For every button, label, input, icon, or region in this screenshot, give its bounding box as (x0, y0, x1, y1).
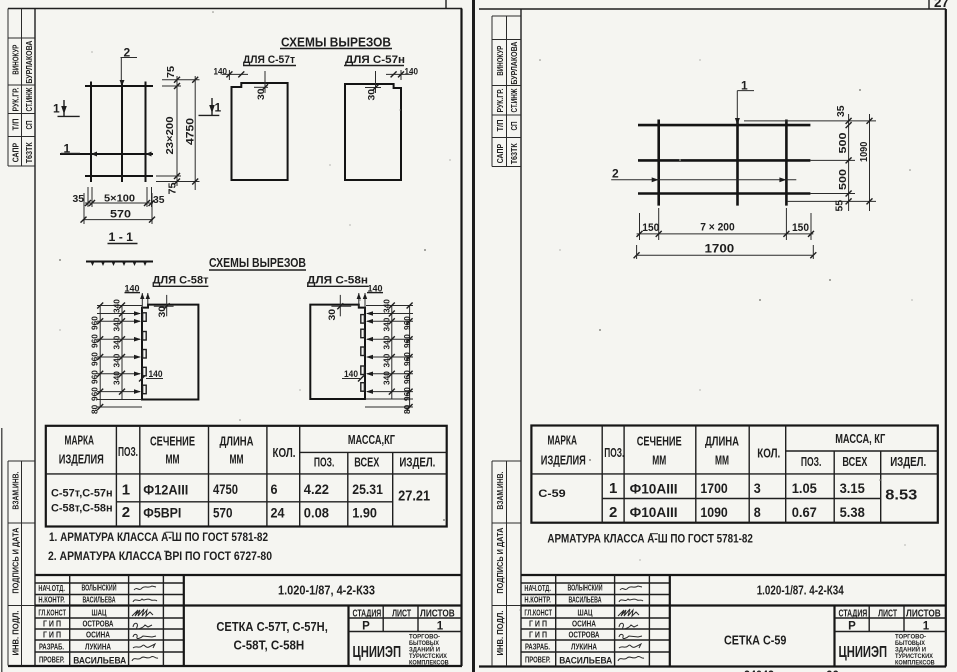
svg-text:140: 140 (149, 369, 163, 379)
svg-text:Ф12АIII: Ф12АIII (143, 483, 188, 498)
svg-text:ВЗАМ.ИНВ.: ВЗАМ.ИНВ. (496, 472, 505, 510)
svg-text:Ф5ВРI: Ф5ВРI (143, 506, 181, 521)
svg-text:ПОЗ.: ПОЗ. (604, 446, 624, 460)
svg-text:140: 140 (405, 67, 419, 77)
svg-text:ВСЕХ: ВСЕХ (842, 455, 867, 469)
svg-text:2: 2 (122, 504, 130, 521)
svg-text:1700: 1700 (705, 244, 735, 256)
svg-text:960: 960 (402, 352, 412, 366)
svg-text:25.31: 25.31 (352, 482, 383, 497)
svg-text:Г И П: Г И П (529, 630, 547, 640)
svg-text:340: 340 (381, 317, 391, 331)
svg-text:Т63ТК: Т63ТК (25, 142, 34, 163)
svg-text:КОМПЛЕКСОВ: КОМПЛЕКСОВ (895, 660, 935, 667)
svg-text:СХЕМЫ ВЫРЕЗОВ: СХЕМЫ ВЫРЕЗОВ (281, 36, 391, 50)
svg-text:ЛИСТОВ: ЛИСТОВ (420, 609, 455, 620)
svg-text:ШАЦ: ШАЦ (578, 608, 593, 618)
svg-text:1: 1 (53, 102, 60, 116)
svg-text:ДЛЯ С-57н: ДЛЯ С-57н (345, 54, 405, 66)
svg-text:1.90: 1.90 (352, 506, 377, 521)
svg-text:1090: 1090 (859, 141, 870, 162)
svg-text:НАЧ.ОТД.: НАЧ.ОТД. (524, 583, 551, 593)
svg-text:ПОДПИСЬ И ДАТА: ПОДПИСЬ И ДАТА (496, 527, 505, 593)
svg-text:БУРЛАКОВА: БУРЛАКОВА (510, 41, 519, 84)
svg-text:30: 30 (327, 309, 337, 321)
svg-text:ВИНОКУР: ВИНОКУР (12, 45, 21, 75)
svg-text:960: 960 (402, 370, 412, 384)
svg-text:НАЧ.ОТД.: НАЧ.ОТД. (38, 583, 65, 593)
svg-text:Т63ТК: Т63ТК (510, 143, 519, 164)
svg-text:960: 960 (402, 316, 412, 330)
svg-text:960: 960 (402, 334, 412, 348)
svg-text:35: 35 (73, 194, 85, 205)
svg-text:КОМПЛЕКСОВ: КОМПЛЕКСОВ (409, 660, 449, 667)
svg-text:Н.КОНТР.: Н.КОНТР. (38, 595, 65, 605)
svg-text:960: 960 (90, 387, 100, 401)
svg-text:Н.КОНТР.: Н.КОНТР. (524, 595, 551, 605)
svg-text:Ф10АIII: Ф10АIII (630, 482, 678, 497)
svg-text:ОСИНА: ОСИНА (572, 619, 596, 629)
svg-text:ИЗДЕЛИЯ: ИЗДЕЛИЯ (541, 454, 586, 468)
svg-text:30: 30 (367, 89, 377, 101)
svg-text:Р: Р (362, 621, 370, 633)
svg-text:ЦНИИЭП: ЦНИИЭП (839, 644, 888, 661)
svg-text:С-58т,С-58н: С-58т,С-58н (51, 503, 113, 515)
svg-text:СП: СП (25, 120, 34, 129)
svg-text:8: 8 (754, 505, 761, 520)
svg-text:РАЗРАБ.: РАЗРАБ. (39, 642, 64, 652)
svg-text:5.38: 5.38 (840, 505, 866, 520)
svg-text:Г И П: Г И П (43, 630, 61, 640)
svg-text:340: 340 (381, 353, 391, 367)
svg-text:5×100: 5×100 (104, 194, 135, 205)
svg-text:4.22: 4.22 (304, 482, 329, 497)
svg-text:ОСТРОВА: ОСТРОВА (569, 630, 600, 640)
svg-text:1: 1 (923, 621, 930, 633)
svg-text:САПР: САПР (496, 144, 505, 163)
svg-text:ПОЗ.: ПОЗ. (314, 456, 335, 470)
svg-text:ЛУКИНА: ЛУКИНА (85, 642, 111, 652)
svg-text:Р: Р (848, 621, 856, 633)
svg-text:8.53: 8.53 (885, 488, 917, 504)
svg-text:500: 500 (838, 169, 849, 190)
svg-text:ШАЦ: ШАЦ (92, 608, 107, 618)
svg-text:МАССА, КГ: МАССА, КГ (835, 432, 885, 446)
svg-text:ДЛЯ С-58т: ДЛЯ С-58т (153, 275, 209, 287)
svg-text:С-57т,С-57н: С-57т,С-57н (51, 488, 113, 500)
svg-text:ЛИСТ: ЛИСТ (392, 609, 412, 620)
svg-text:500: 500 (838, 132, 849, 153)
svg-text:340: 340 (112, 371, 122, 385)
svg-text:1: 1 (609, 480, 617, 497)
svg-text:Ф10АIII: Ф10АIII (630, 505, 678, 520)
svg-text:СТ.ИНЖ: СТ.ИНЖ (510, 88, 519, 113)
svg-text:1 - 1: 1 - 1 (109, 232, 134, 244)
svg-text:ВЗАМ.ИНВ.: ВЗАМ.ИНВ. (12, 472, 21, 510)
svg-text:80: 80 (402, 404, 412, 414)
svg-text:0.67: 0.67 (792, 505, 817, 520)
svg-text:ММ: ММ (230, 453, 244, 467)
svg-text:ИНВ. ПОДЛ.: ИНВ. ПОДЛ. (12, 611, 21, 656)
svg-text:35: 35 (153, 195, 165, 206)
svg-text:СЕТКА С-57Т, С-57Н,: СЕТКА С-57Т, С-57Н, (216, 619, 327, 634)
svg-text:1: 1 (215, 101, 222, 115)
svg-text:СП: СП (510, 121, 519, 130)
svg-text:МАРКА: МАРКА (65, 434, 95, 448)
svg-text:75: 75 (168, 182, 179, 194)
svg-text:340: 340 (112, 317, 122, 331)
svg-text:340: 340 (381, 299, 391, 313)
svg-text:ПРОВЕР.: ПРОВЕР. (525, 655, 551, 665)
svg-text:ВОЛЫНСКИЙ: ВОЛЫНСКИЙ (568, 582, 603, 593)
svg-text:23×200: 23×200 (165, 116, 176, 154)
svg-text:960: 960 (402, 387, 412, 401)
svg-text:7 × 200: 7 × 200 (700, 222, 735, 234)
svg-text:1: 1 (437, 621, 444, 633)
svg-text:ПОДПИСЬ И ДАТА: ПОДПИСЬ И ДАТА (12, 527, 21, 593)
svg-text:ПРОВЕР.: ПРОВЕР. (39, 655, 65, 665)
svg-text:0.08: 0.08 (304, 506, 330, 521)
svg-text:150: 150 (642, 222, 659, 234)
svg-text:ПОЗ.: ПОЗ. (118, 445, 138, 459)
svg-text:1.020-1/87. 4-2-К34: 1.020-1/87. 4-2-К34 (757, 584, 844, 598)
svg-text:80: 80 (90, 404, 100, 414)
svg-text:340: 340 (112, 299, 122, 313)
svg-text:РУК.ГР.: РУК.ГР. (12, 88, 21, 112)
svg-text:960: 960 (90, 352, 100, 366)
svg-text:ИЗДЕЛ.: ИЗДЕЛ. (890, 455, 926, 469)
svg-text:ВАСИЛЬЕВА: ВАСИЛЬЕВА (73, 656, 127, 666)
svg-text:ММ: ММ (166, 453, 180, 467)
svg-text:СХЕМЫ ВЫРЕЗОВ: СХЕМЫ ВЫРЕЗОВ (209, 256, 306, 270)
svg-text:СЕТКА С-59: СЕТКА С-59 (724, 633, 786, 648)
svg-text:1. АРМАТУРА КЛАССА А-Ш ПО ГОС: 1. АРМАТУРА КЛАССА А-Ш ПО ГОСТ 5781-82 (49, 530, 268, 544)
svg-text:340: 340 (381, 371, 391, 385)
svg-text:ММ: ММ (715, 454, 729, 468)
svg-text:140: 140 (214, 67, 228, 77)
svg-text:1700: 1700 (700, 481, 727, 496)
svg-text:ЦНИИЭП: ЦНИИЭП (353, 644, 402, 661)
svg-text:75: 75 (166, 66, 177, 78)
svg-text:ПОЗ.: ПОЗ. (801, 455, 822, 469)
svg-text:Т/П: Т/П (496, 119, 505, 131)
svg-text:1.020-1/87, 4-2-К33: 1.020-1/87, 4-2-К33 (278, 584, 375, 598)
svg-text:4750: 4750 (213, 482, 238, 497)
svg-text:ЛУКИНА: ЛУКИНА (571, 642, 597, 652)
svg-text:6: 6 (271, 482, 278, 497)
svg-text:2. АРМАТУРА КЛАССА ВРI ПО ГОС: 2. АРМАТУРА КЛАССА ВРI ПО ГОСТ 6727-80 (48, 549, 272, 563)
svg-text:150: 150 (792, 222, 809, 234)
svg-text:ЛИСТОВ: ЛИСТОВ (906, 609, 941, 620)
svg-text:30: 30 (157, 306, 167, 318)
svg-text:960: 960 (90, 334, 100, 348)
svg-text:27: 27 (934, 0, 949, 10)
svg-text:3.15: 3.15 (840, 481, 866, 496)
svg-text:2: 2 (609, 504, 617, 521)
svg-text:СЕЧЕНИЕ: СЕЧЕНИЕ (150, 435, 195, 449)
svg-text:35: 35 (836, 105, 847, 117)
svg-text:1090: 1090 (700, 505, 727, 520)
svg-text:ВИНОКУР: ВИНОКУР (496, 46, 505, 76)
svg-text:ВАСИЛЬЕВА: ВАСИЛЬЕВА (83, 595, 116, 605)
svg-text:БУРЛАКОВА: БУРЛАКОВА (25, 40, 34, 83)
svg-text:ДЛИНА: ДЛИНА (705, 435, 739, 449)
svg-text:ВАСИЛЬЕВА: ВАСИЛЬЕВА (559, 656, 613, 666)
svg-text:30: 30 (256, 89, 266, 101)
svg-text:С-59: С-59 (538, 488, 565, 500)
svg-text:МАССА,КГ: МАССА,КГ (348, 433, 395, 447)
svg-text:ОСИНА: ОСИНА (86, 630, 110, 640)
svg-text:ЛИСТ: ЛИСТ (878, 609, 898, 620)
svg-text:340: 340 (112, 353, 122, 367)
svg-text:СТАДИЯ: СТАДИЯ (839, 609, 868, 620)
svg-text:2: 2 (612, 167, 619, 181)
svg-text:ВОЛЫНСКИЙ: ВОЛЫНСКИЙ (82, 582, 117, 593)
svg-text:ДЛЯ С-57т: ДЛЯ С-57т (243, 54, 295, 66)
svg-text:960: 960 (90, 370, 100, 384)
svg-text:ИЗДЕЛ.: ИЗДЕЛ. (399, 456, 435, 470)
svg-text:ДЛЯ С-58н: ДЛЯ С-58н (307, 275, 368, 287)
svg-text:ВАСИЛЬЕВА: ВАСИЛЬЕВА (569, 595, 602, 605)
svg-text:ОСТРОВА: ОСТРОВА (83, 619, 114, 629)
svg-text:СТАДИЯ: СТАДИЯ (353, 609, 382, 620)
svg-text:340: 340 (381, 335, 391, 349)
svg-text:САПР: САПР (12, 143, 21, 162)
svg-text:1: 1 (122, 482, 130, 499)
svg-text:960: 960 (90, 316, 100, 330)
svg-text:27.21: 27.21 (398, 489, 430, 505)
svg-text:24: 24 (271, 506, 285, 521)
svg-text:РУК.ГР.: РУК.ГР. (496, 89, 505, 113)
svg-text:ИЗДЕЛИЯ: ИЗДЕЛИЯ (59, 453, 104, 467)
svg-text:КОЛ.: КОЛ. (273, 446, 296, 460)
svg-text:ГЛ.КОНСТ: ГЛ.КОНСТ (524, 608, 552, 618)
svg-text:РАЗРАБ.: РАЗРАБ. (525, 642, 550, 652)
svg-text:570: 570 (110, 209, 131, 221)
svg-text:Т/П: Т/П (12, 118, 21, 130)
svg-text:Г И П: Г И П (43, 619, 61, 629)
svg-text:СТ.ИНЖ: СТ.ИНЖ (25, 87, 34, 112)
svg-text:3: 3 (754, 481, 761, 496)
svg-text:Г И П: Г И П (529, 619, 547, 629)
svg-text:140: 140 (344, 369, 358, 379)
svg-text:С-58Т, С-58Н: С-58Т, С-58Н (234, 638, 305, 653)
svg-text:ДЛИНА: ДЛИНА (220, 435, 254, 449)
svg-text:МАРКА: МАРКА (547, 434, 577, 448)
svg-text:55: 55 (835, 200, 846, 212)
svg-text:1.05: 1.05 (792, 481, 818, 496)
svg-text:ММ: ММ (652, 454, 666, 468)
svg-text:ГЛ.КОНСТ: ГЛ.КОНСТ (38, 608, 66, 618)
svg-text:ИНВ. ПОДЛ.: ИНВ. ПОДЛ. (496, 611, 505, 656)
svg-text:340: 340 (112, 335, 122, 349)
svg-text:ВСЕХ: ВСЕХ (354, 456, 379, 470)
svg-text:КОЛ.: КОЛ. (757, 447, 780, 461)
svg-text:4750: 4750 (185, 118, 197, 145)
svg-text:570: 570 (213, 506, 233, 521)
svg-text:СЕЧЕНИЕ: СЕЧЕНИЕ (637, 435, 682, 449)
